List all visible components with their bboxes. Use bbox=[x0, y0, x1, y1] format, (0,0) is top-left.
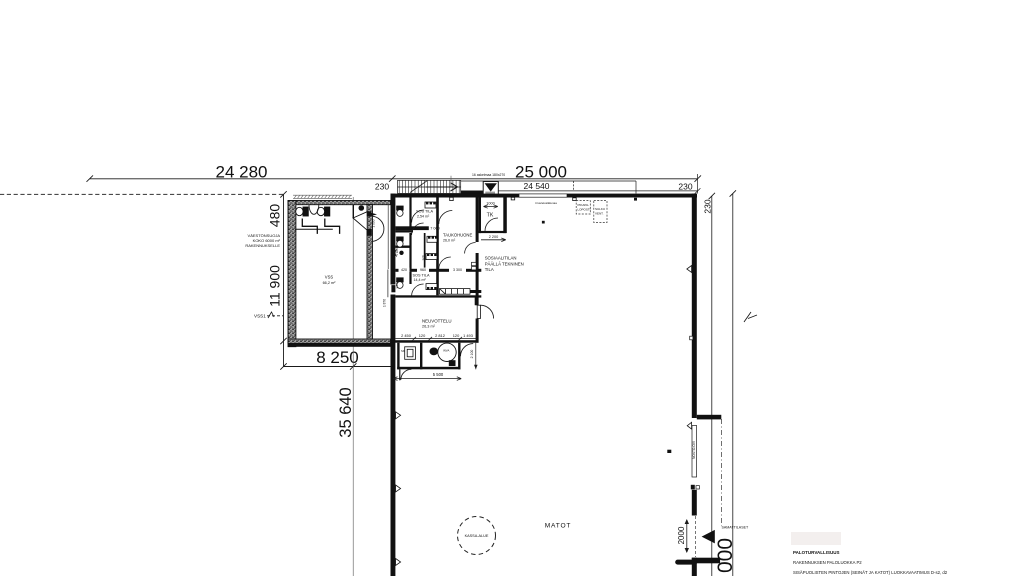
svg-text:MATOT: MATOT bbox=[545, 523, 571, 530]
svg-text:25 000: 25 000 bbox=[515, 163, 567, 182]
svg-text:SOS TILA: SOS TILA bbox=[413, 274, 430, 278]
svg-text:120: 120 bbox=[421, 255, 425, 260]
svg-text:2,54 m²: 2,54 m² bbox=[417, 215, 430, 219]
svg-text:VSS: VSS bbox=[325, 275, 334, 280]
svg-text:2 100: 2 100 bbox=[470, 350, 474, 359]
svg-text:SOSIAALITILAN: SOSIAALITILAN bbox=[485, 256, 517, 261]
svg-text:VENT.: VENT. bbox=[595, 212, 604, 216]
svg-text:2 450: 2 450 bbox=[401, 333, 412, 338]
svg-text:SISÄPUOLISTEN PINTOJEN (SEINÄT: SISÄPUOLISTEN PINTOJEN (SEINÄT JA KATOT)… bbox=[793, 570, 948, 575]
svg-text:960: 960 bbox=[420, 268, 426, 272]
svg-text:35 640: 35 640 bbox=[337, 387, 355, 437]
svg-text:230: 230 bbox=[678, 181, 692, 191]
svg-text:1 920: 1 920 bbox=[395, 248, 399, 256]
svg-text:230: 230 bbox=[375, 181, 389, 191]
svg-text:120: 120 bbox=[453, 333, 460, 338]
svg-text:8 250: 8 250 bbox=[316, 348, 359, 367]
svg-text:3 300: 3 300 bbox=[453, 268, 462, 272]
svg-text:2 200: 2 200 bbox=[489, 235, 499, 239]
svg-text:PIKAPA-: PIKAPA- bbox=[578, 203, 590, 207]
svg-text:1 000: 1 000 bbox=[372, 219, 376, 227]
svg-text:PALOTURVALLISUUS: PALOTURVALLISUUS bbox=[793, 550, 840, 555]
svg-text:1 876: 1 876 bbox=[383, 299, 387, 307]
svg-text:2000: 2000 bbox=[677, 526, 686, 544]
svg-text:420: 420 bbox=[401, 268, 407, 272]
svg-text:TK: TK bbox=[487, 213, 494, 219]
svg-text:24 280: 24 280 bbox=[216, 163, 268, 182]
svg-text:TAUKOHUONE: TAUKOHUONE bbox=[443, 233, 472, 238]
svg-text:1 493: 1 493 bbox=[463, 333, 473, 338]
svg-text:RAKENNUKSEN PALOLUOKKA P2: RAKENNUKSEN PALOLUOKKA P2 bbox=[793, 560, 862, 565]
svg-text:11 900: 11 900 bbox=[267, 265, 283, 307]
svg-text:14,4 m²: 14,4 m² bbox=[414, 278, 427, 282]
svg-text:2 812: 2 812 bbox=[435, 333, 445, 338]
svg-text:SK: SK bbox=[401, 349, 405, 353]
svg-text:TILA: TILA bbox=[485, 267, 494, 272]
svg-text:LOPOSTI: LOPOSTI bbox=[578, 208, 591, 212]
svg-text:SAMATTILASET: SAMATTILASET bbox=[722, 526, 749, 530]
svg-text:230: 230 bbox=[703, 199, 713, 213]
svg-text:4 tuuletusikkunaa: 4 tuuletusikkunaa bbox=[535, 201, 557, 205]
svg-text:NEUVOTTELU: NEUVOTTELU bbox=[422, 319, 452, 324]
svg-text:480: 480 bbox=[267, 204, 283, 228]
svg-text:26,3 m²: 26,3 m² bbox=[422, 325, 436, 329]
svg-text:16 askelmaa 180x270: 16 askelmaa 180x270 bbox=[472, 173, 505, 177]
svg-text:SULKU: SULKU bbox=[595, 207, 605, 211]
svg-text:INVA: INVA bbox=[443, 349, 449, 353]
svg-text:5 500: 5 500 bbox=[433, 372, 444, 377]
svg-text:NOSTO-OVI: NOSTO-OVI bbox=[692, 441, 696, 459]
svg-text:RAKENNUKSELLE: RAKENNUKSELLE bbox=[245, 243, 280, 248]
svg-text:50 000: 50 000 bbox=[714, 538, 737, 576]
svg-text:66,2 m²: 66,2 m² bbox=[323, 281, 337, 285]
svg-text:VSS1: VSS1 bbox=[254, 314, 266, 319]
svg-text:7 060: 7 060 bbox=[430, 227, 440, 231]
svg-text:120: 120 bbox=[419, 333, 426, 338]
svg-text:KASSA-ALUE: KASSA-ALUE bbox=[465, 534, 489, 538]
svg-text:PÄÄLLÄ TEKNINEN: PÄÄLLÄ TEKNINEN bbox=[485, 261, 524, 266]
svg-text:1 874: 1 874 bbox=[395, 281, 399, 289]
svg-text:26,0 m²: 26,0 m² bbox=[443, 239, 456, 243]
svg-text:24 540: 24 540 bbox=[524, 181, 550, 191]
